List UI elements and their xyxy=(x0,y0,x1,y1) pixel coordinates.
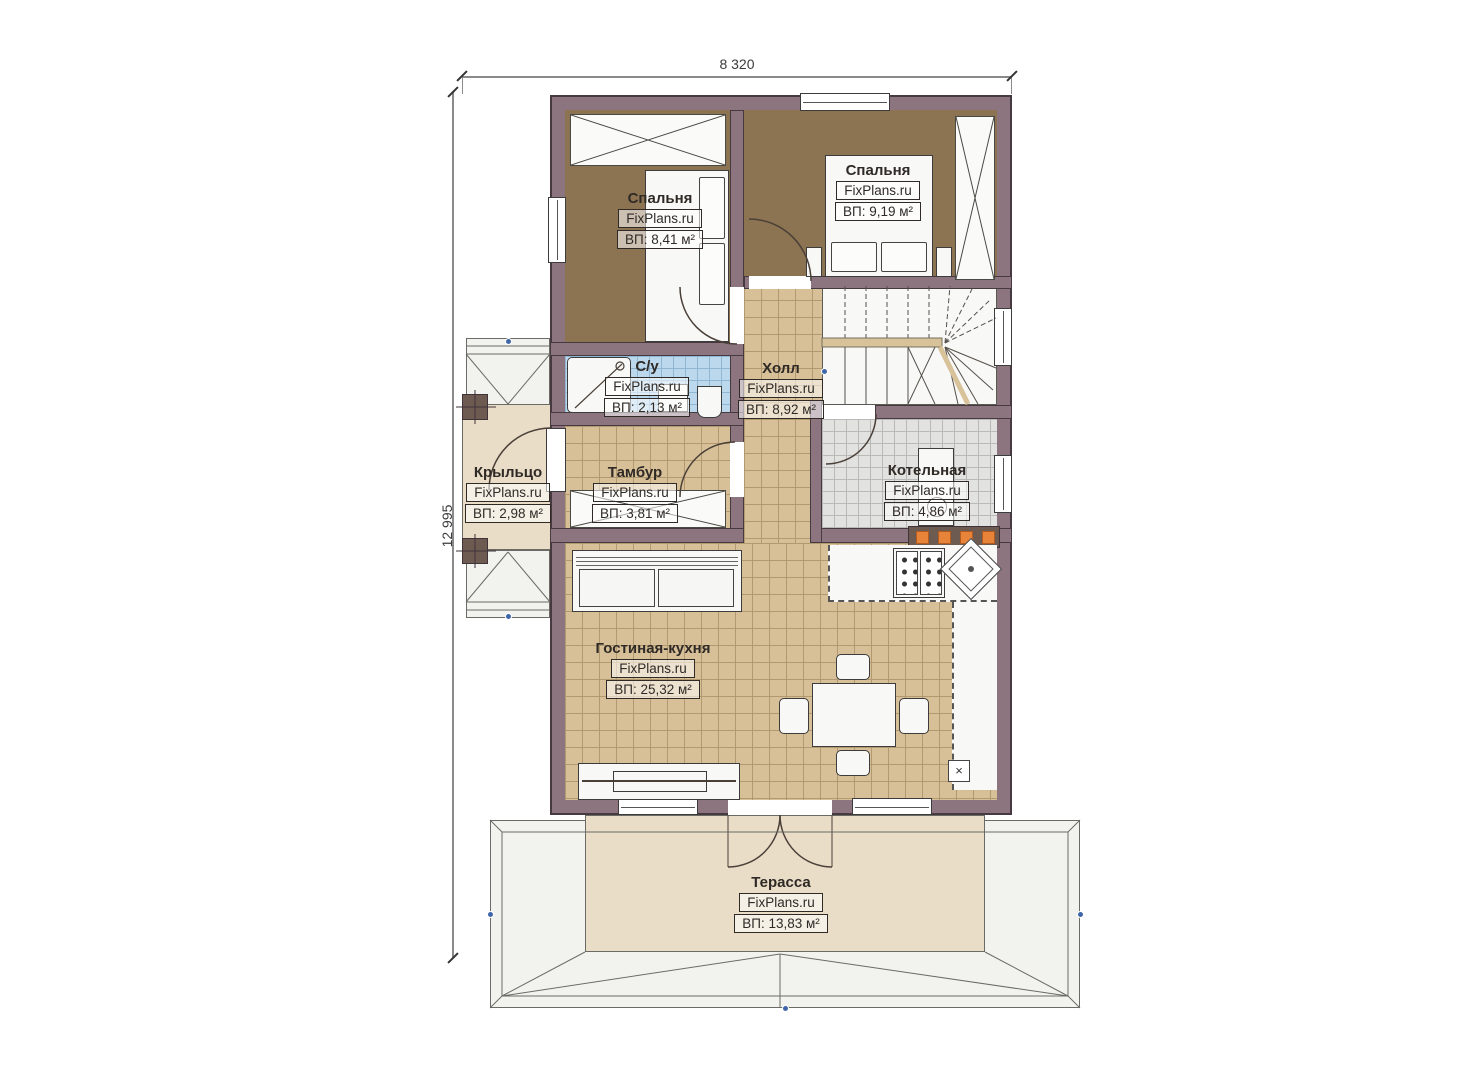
window-boiler xyxy=(994,455,1012,513)
room-name: Гостиная-кухня xyxy=(596,640,711,657)
window-living-left xyxy=(618,798,698,815)
burner-panel xyxy=(920,551,942,595)
room-name: Крыльцо xyxy=(474,464,542,481)
pillow xyxy=(881,242,927,272)
room-area: ВП: 8,41 м² xyxy=(617,230,703,249)
window-stairs xyxy=(994,308,1012,366)
brand-tag: FixPlans.ru xyxy=(618,209,702,228)
room-label-terrace: Терасса FixPlans.ru ВП: 13,83 м² xyxy=(708,874,854,933)
room-name: Холл xyxy=(762,360,800,377)
chair xyxy=(779,698,809,734)
window-living-right xyxy=(852,798,932,815)
room-label-tambour: Тамбур FixPlans.ru ВП: 3,81 м² xyxy=(580,464,690,523)
terrace-door-opening xyxy=(728,800,832,815)
sofa-seat xyxy=(658,569,734,607)
room-label-bedroom-1: Спальня FixPlans.ru ВП: 8,41 м² xyxy=(586,190,734,249)
room-area: ВП: 13,83 м² xyxy=(734,914,828,933)
room-name: С/у xyxy=(635,358,658,375)
flue-tile xyxy=(916,531,929,544)
porch-post xyxy=(462,538,488,564)
dimension-ext xyxy=(462,78,463,94)
flue-tile xyxy=(938,531,951,544)
room-area: ВП: 9,19 м² xyxy=(835,202,921,221)
marker-dot xyxy=(782,1005,789,1012)
nightstand xyxy=(936,247,952,277)
staircase xyxy=(822,283,997,405)
sofa-seat xyxy=(579,569,655,607)
room-label-boiler: Котельная FixPlans.ru ВП: 4,86 м² xyxy=(868,462,986,521)
interior-wall xyxy=(810,400,822,543)
room-area: ВП: 25,32 м² xyxy=(606,680,700,699)
room-area: ВП: 3,81 м² xyxy=(592,504,678,523)
marker-dot xyxy=(505,613,512,620)
brand-tag: FixPlans.ru xyxy=(885,481,969,500)
stove xyxy=(893,548,945,598)
dimension-width-label: 8 320 xyxy=(462,56,1012,72)
room-area: ВП: 8,92 м² xyxy=(738,400,824,419)
door-opening-bedroom-2 xyxy=(749,276,811,289)
room-area: ВП: 2,98 м² xyxy=(465,504,551,523)
nightstand xyxy=(806,247,822,277)
wardrobe-bedroom-1 xyxy=(570,114,726,166)
room-name: Тамбур xyxy=(608,464,662,481)
marker-dot xyxy=(505,338,512,345)
tv-stand xyxy=(578,763,740,800)
wardrobe-bedroom-2 xyxy=(955,116,995,280)
brand-tag: FixPlans.ru xyxy=(593,483,677,502)
pillow xyxy=(831,242,877,272)
window-bedroom-1 xyxy=(548,197,566,263)
room-label-bathroom: С/у FixPlans.ru ВП: 2,13 м² xyxy=(592,358,702,417)
sofa-backrest xyxy=(576,554,738,566)
burner-panel xyxy=(896,551,918,595)
chair xyxy=(899,698,929,734)
chair xyxy=(836,654,870,680)
dimension-width-line xyxy=(462,76,1012,78)
room-name: Котельная xyxy=(888,462,967,479)
tv-stand-inner xyxy=(613,771,707,792)
dining-table xyxy=(812,683,896,747)
interior-wall xyxy=(875,405,1012,419)
brand-tag: FixPlans.ru xyxy=(605,377,689,396)
room-label-living-kitchen: Гостиная-кухня FixPlans.ru ВП: 25,32 м² xyxy=(580,640,726,699)
interior-wall xyxy=(550,528,744,543)
marker-dot xyxy=(487,911,494,918)
room-area: ВП: 2,13 м² xyxy=(604,398,690,417)
marker-dot xyxy=(1077,911,1084,918)
brand-tag: FixPlans.ru xyxy=(739,893,823,912)
room-name: Спальня xyxy=(628,190,693,207)
brand-tag: FixPlans.ru xyxy=(739,379,823,398)
door-opening-tambour-hall xyxy=(730,442,744,497)
room-name: Терасса xyxy=(751,874,810,891)
sofa xyxy=(572,550,742,612)
floor-plan: 8 320 12 995 xyxy=(0,0,1473,1080)
brand-tag: FixPlans.ru xyxy=(836,181,920,200)
room-label-porch: Крыльцо FixPlans.ru ВП: 2,98 м² xyxy=(452,464,564,523)
interior-wall xyxy=(550,342,744,356)
dimension-ext xyxy=(1011,78,1012,94)
room-label-bedroom-2: Спальня FixPlans.ru ВП: 9,19 м² xyxy=(822,162,934,221)
pillow xyxy=(699,243,725,305)
dimension-height-line xyxy=(452,92,454,958)
room-label-hall: Холл FixPlans.ru ВП: 8,92 м² xyxy=(726,360,836,419)
door-opening-bedroom-1 xyxy=(730,287,744,344)
flue-tile xyxy=(982,531,995,544)
porch-post xyxy=(462,394,488,420)
room-area: ВП: 4,86 м² xyxy=(884,502,970,521)
window-bedroom-2 xyxy=(800,93,890,111)
room-name: Спальня xyxy=(846,162,911,179)
brand-tag: FixPlans.ru xyxy=(466,483,550,502)
brand-tag: FixPlans.ru xyxy=(611,659,695,678)
chair xyxy=(836,750,870,776)
vent-symbol: × xyxy=(948,760,970,782)
